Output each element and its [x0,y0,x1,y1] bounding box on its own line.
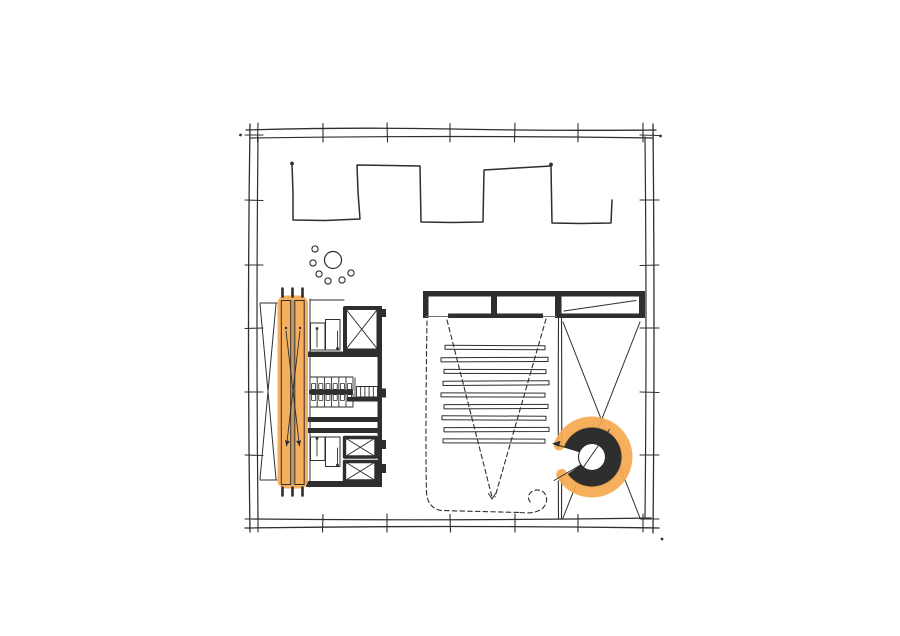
stair-lower [311,437,341,467]
elevator-upper [345,308,379,351]
service-core [306,299,386,487]
grid-dot [659,135,662,138]
table [325,252,342,269]
table-with-chairs [310,246,354,284]
spiral-stair [547,422,627,492]
elevators-lower [345,438,377,482]
stair-upper [311,320,341,351]
lobby-wall-band [423,291,645,318]
floor-plan-drawing [0,0,900,636]
escalator-bank [278,289,309,496]
ramp-line [564,301,636,312]
grid-dot [661,538,664,541]
floor-plan-page [0,0,900,636]
grid-dot [239,134,242,137]
zigzag-partition-wall [290,162,612,224]
wc-stalls [309,377,381,407]
